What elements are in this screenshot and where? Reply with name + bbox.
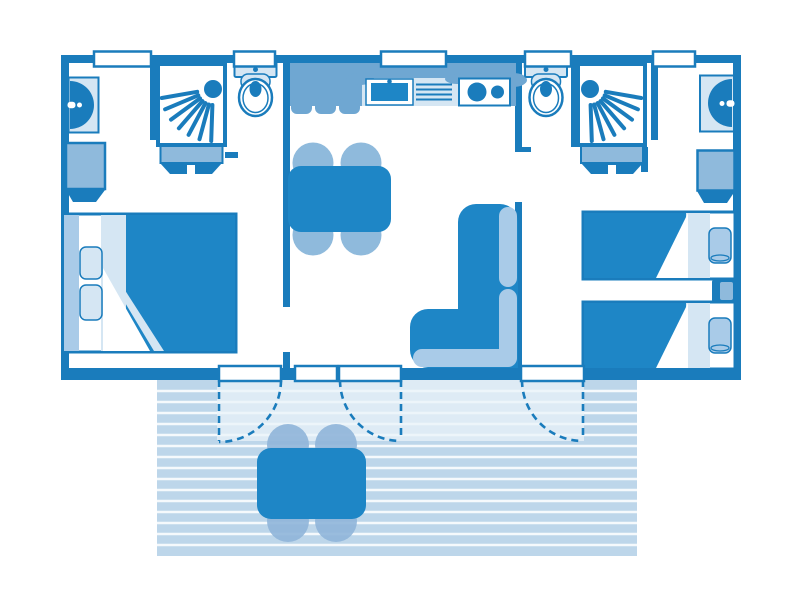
door-leaf	[521, 366, 584, 381]
water-heater-notch	[187, 165, 195, 175]
cabinet-fronts	[291, 98, 360, 114]
cabinet-door	[291, 98, 312, 114]
window	[525, 52, 571, 67]
washbasin-left	[68, 78, 99, 133]
water-heater	[161, 146, 223, 163]
sofa-cushion	[499, 207, 517, 287]
burner-icon	[468, 83, 487, 102]
faucet-icon	[68, 102, 76, 109]
shower-left	[158, 64, 225, 145]
door-leaf	[339, 366, 401, 381]
window	[653, 52, 695, 67]
single-bed-2	[583, 302, 735, 369]
cabinet-door	[339, 98, 360, 114]
wall-stub	[225, 152, 238, 158]
nightstand	[712, 280, 734, 302]
pillow	[709, 228, 731, 263]
kitchen-sink	[366, 79, 413, 105]
window	[234, 52, 275, 67]
double-bed	[63, 214, 236, 352]
terrace	[157, 380, 637, 556]
floor-plan-canvas	[0, 0, 800, 600]
toilet-drain-icon	[250, 81, 262, 97]
headboard	[64, 215, 79, 351]
wall-bedroom-right-upper	[515, 55, 522, 147]
burner-icon	[491, 86, 504, 99]
water-heater	[581, 146, 643, 163]
wardrobe-left	[66, 143, 105, 202]
washbasin-right	[700, 76, 735, 132]
shower-right	[578, 64, 645, 145]
sink-basin	[371, 83, 408, 101]
floor-plan	[0, 0, 800, 600]
faucet-icon	[727, 100, 735, 107]
terrace-table	[257, 448, 366, 519]
water-heater-right	[581, 146, 643, 175]
bed-sheet	[686, 303, 710, 368]
bed-sheet	[686, 213, 710, 278]
water-heater-notch	[608, 165, 616, 175]
door-leaf	[295, 366, 337, 381]
doors-bottom	[219, 366, 584, 381]
window	[381, 52, 446, 67]
door-leaf	[219, 366, 281, 381]
faucet-icon	[720, 101, 725, 106]
cooktop	[459, 79, 510, 106]
pillow	[709, 318, 731, 353]
window	[94, 52, 151, 67]
faucet-icon	[387, 79, 392, 84]
wall-stub	[515, 147, 531, 152]
faucet-icon	[77, 103, 82, 108]
toilet-drain-icon	[540, 81, 552, 97]
pillow	[80, 285, 102, 320]
sofa-cushion	[413, 349, 517, 367]
dining-table	[288, 166, 391, 232]
toilet-right	[525, 62, 567, 116]
single-bed-1	[583, 212, 735, 279]
wall-bedroom-left-stub	[283, 352, 290, 380]
wardrobe-right	[697, 151, 735, 204]
water-heater-left	[160, 146, 223, 175]
pillow	[80, 247, 102, 279]
wardrobe	[698, 151, 735, 191]
nightstand-top	[719, 281, 734, 301]
wardrobe	[66, 143, 105, 189]
toilet-left	[235, 62, 277, 116]
cabinet-door	[315, 98, 336, 114]
